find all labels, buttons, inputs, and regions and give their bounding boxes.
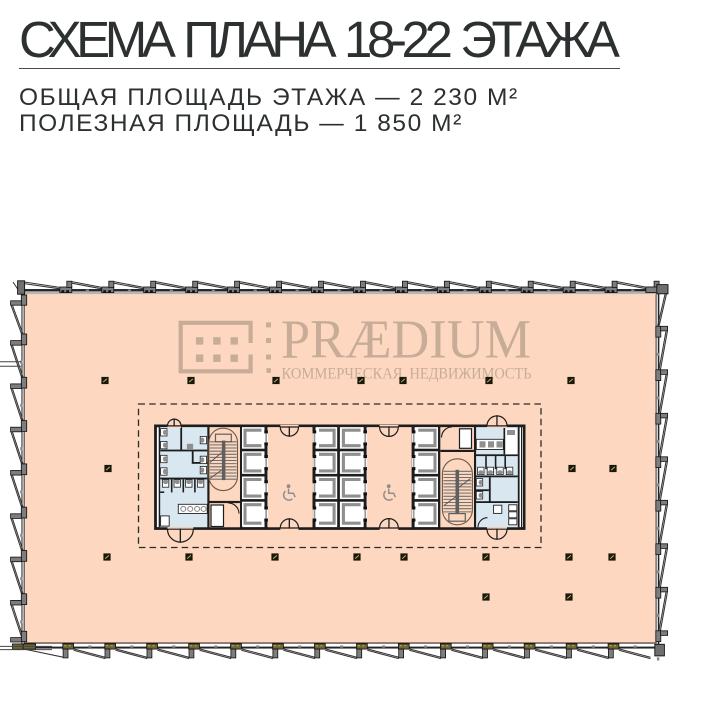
svg-text:КОММЕРЧЕСКАЯ: КОММЕРЧЕСКАЯ bbox=[282, 365, 403, 382]
svg-text:PRÆDIUM: PRÆDIUM bbox=[281, 310, 531, 371]
svg-text:НЕДВИЖИМОСТЬ: НЕДВИЖИМОСТЬ bbox=[410, 365, 532, 382]
